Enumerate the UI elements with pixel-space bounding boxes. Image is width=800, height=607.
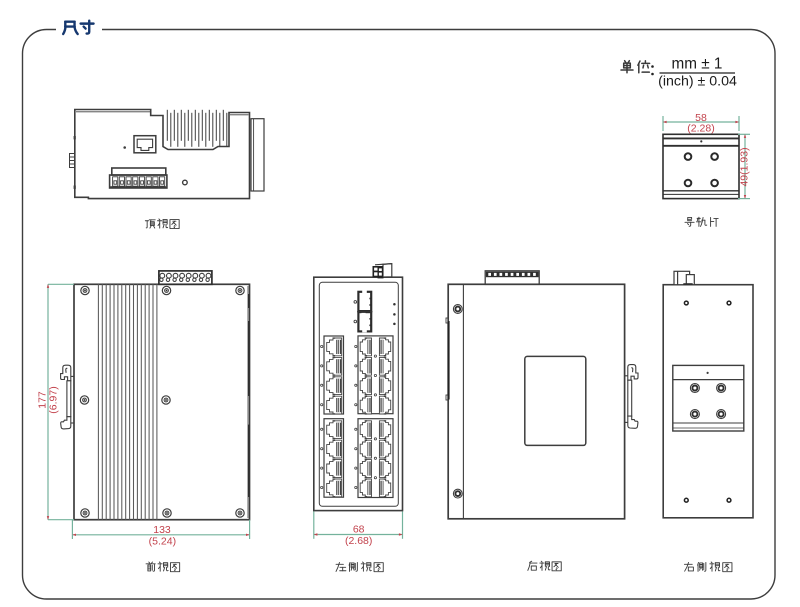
svg-text:133: 133: [153, 524, 171, 536]
svg-text:49(1.93): 49(1.93): [738, 147, 750, 186]
svg-text:(2.68): (2.68): [345, 535, 372, 547]
svg-text:mm ± 1: mm ± 1: [672, 56, 723, 73]
svg-text:68: 68: [353, 524, 365, 536]
svg-text:177: 177: [36, 391, 48, 409]
svg-text:(5.24): (5.24): [149, 535, 176, 547]
svg-text:(2.28): (2.28): [687, 123, 714, 135]
svg-text:(6.97): (6.97): [48, 386, 60, 413]
svg-text:(inch) ± 0.04: (inch) ± 0.04: [658, 74, 737, 90]
